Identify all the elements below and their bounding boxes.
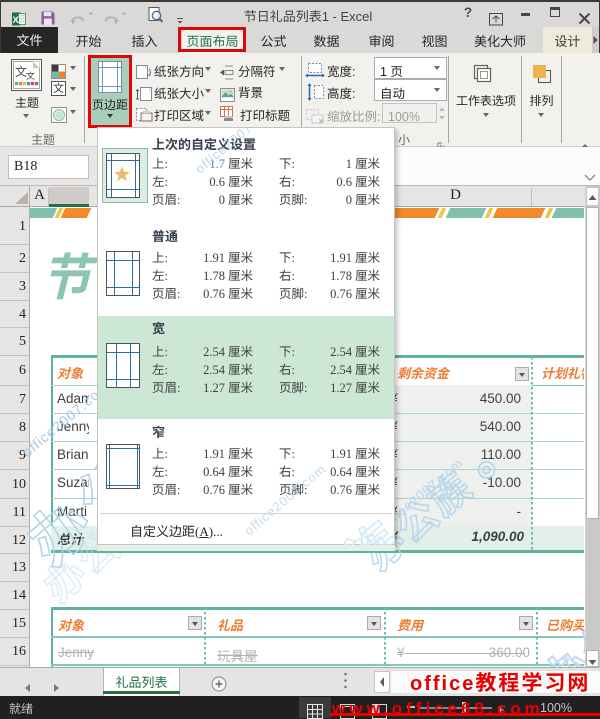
svg-text:文: 文 — [26, 69, 35, 82]
svg-text:X: X — [13, 15, 20, 26]
